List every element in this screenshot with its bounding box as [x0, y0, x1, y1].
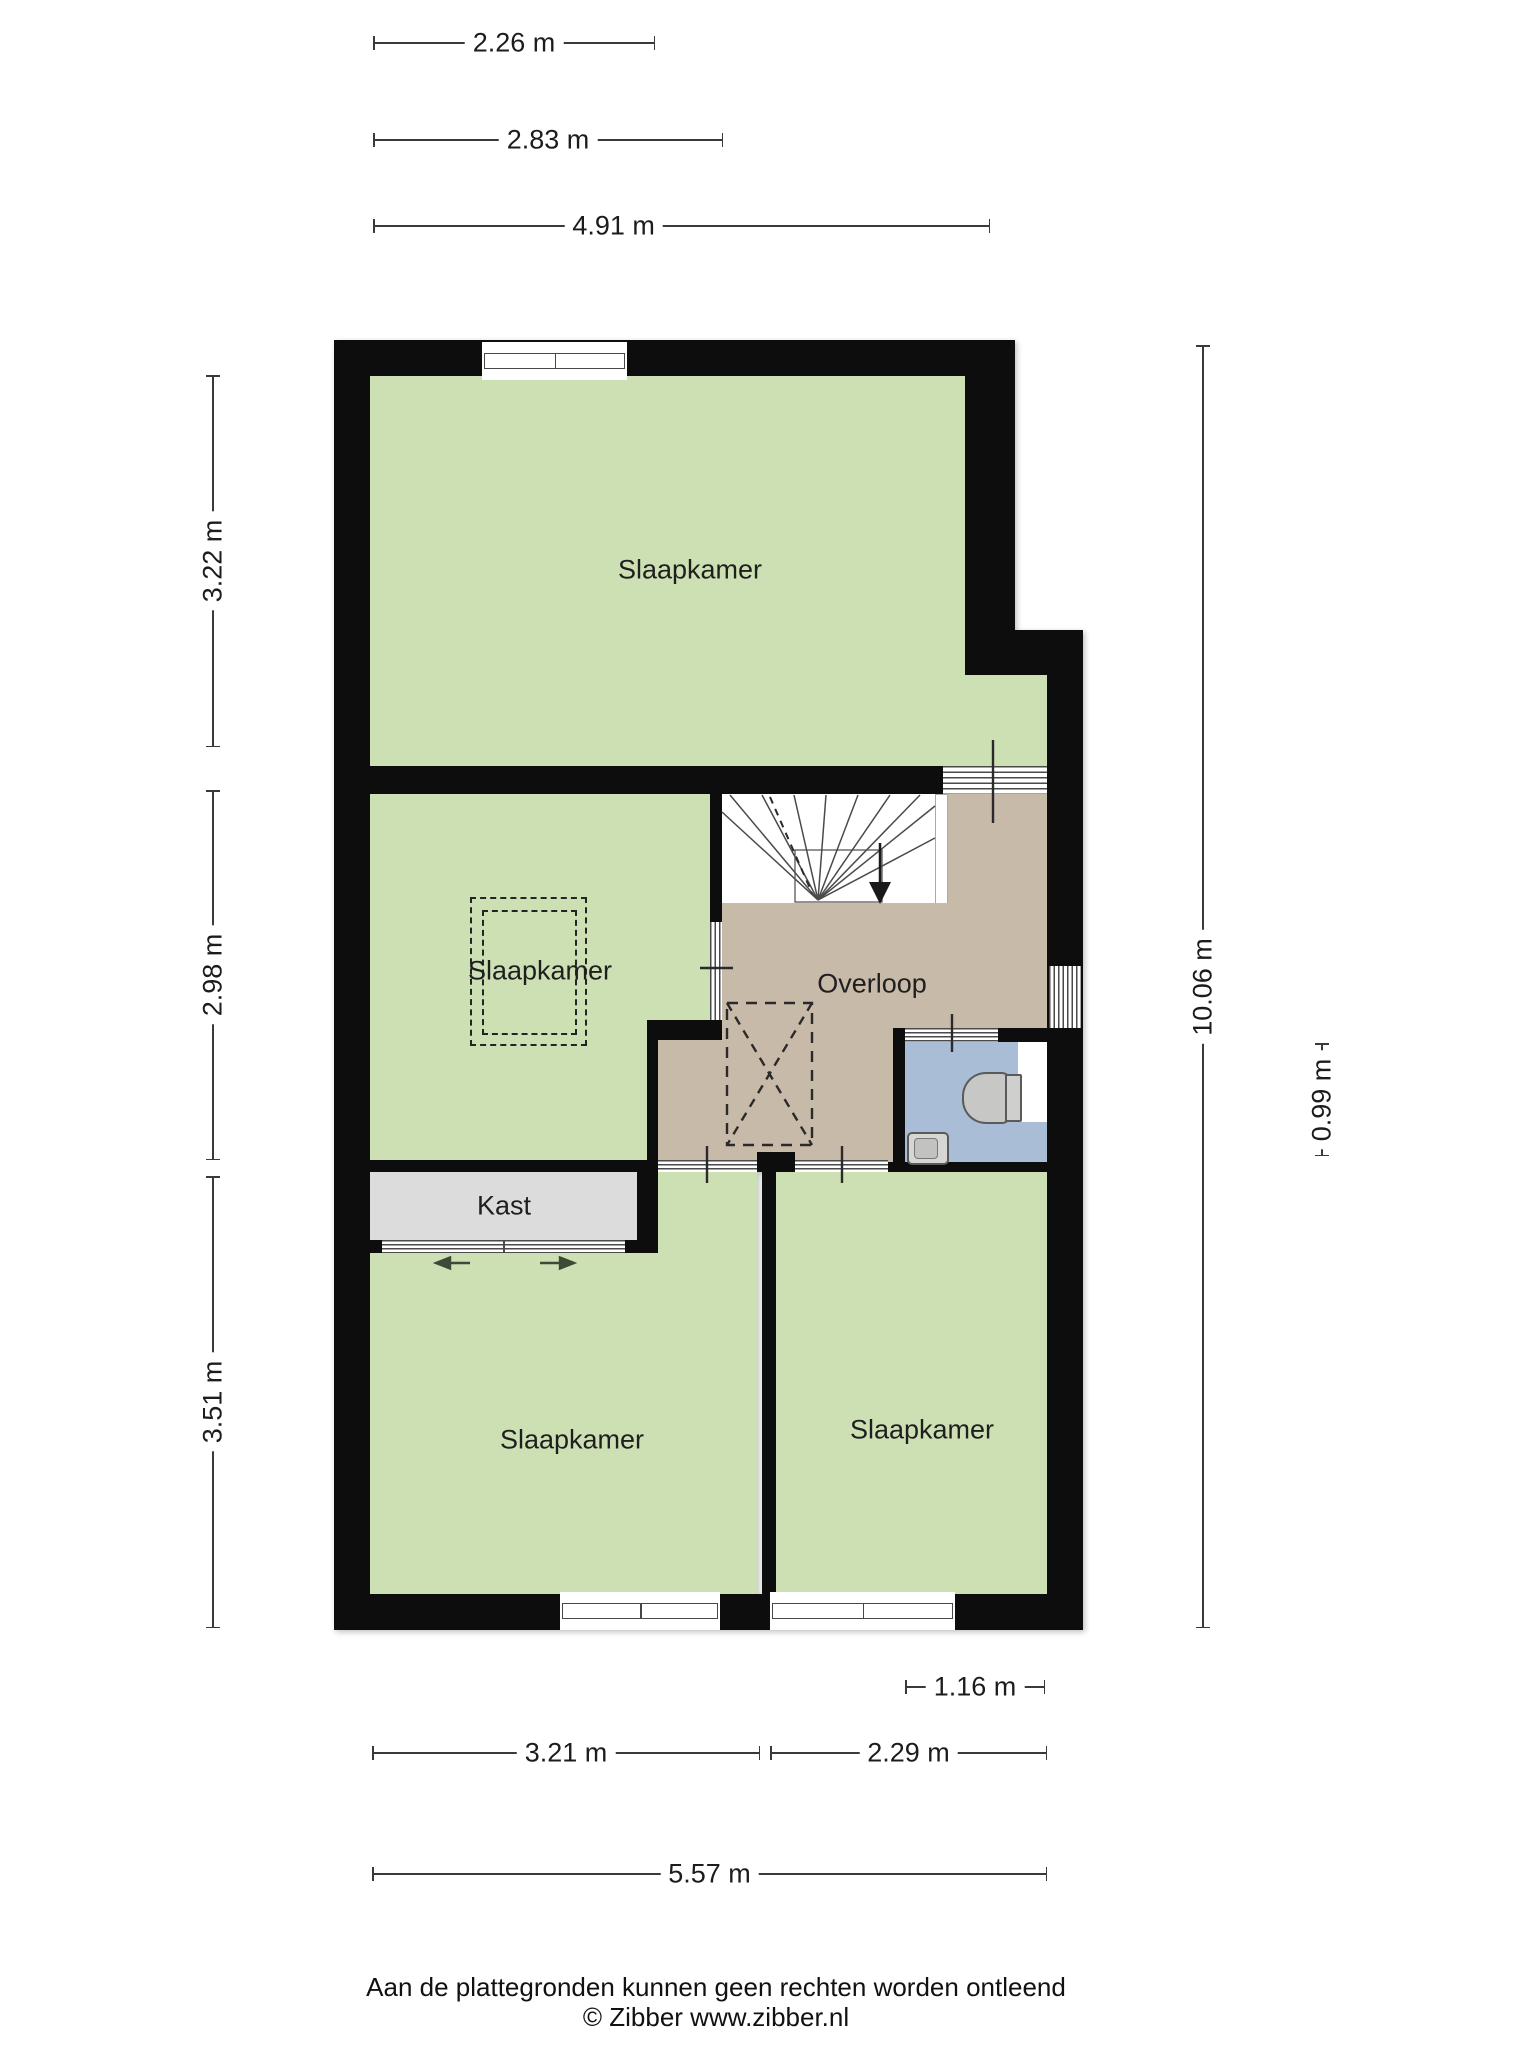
toilet-niche	[1018, 1042, 1047, 1122]
dimension-label: 10.06 m	[1188, 930, 1219, 1044]
opening-bottom-right-icon	[795, 1160, 888, 1172]
wall-opening-head	[757, 1152, 795, 1172]
dimension-label: 1.16 m	[926, 1672, 1025, 1703]
wall-left	[334, 340, 370, 1630]
wall-notch-west	[647, 1040, 658, 1172]
toilet-cistern-icon	[1005, 1074, 1022, 1122]
wall-toilet-left	[893, 1042, 905, 1162]
dimension-label: 2.26 m	[465, 28, 564, 59]
floorplan-page: Slaapkamer Slaapkamer Overloop Kast Slaa…	[0, 0, 1536, 2048]
sink-basin-icon	[914, 1138, 938, 1159]
window-bottom-right-icon	[770, 1592, 955, 1630]
landing-fill-main	[722, 903, 893, 1162]
dimension-label: 2.29 m	[859, 1738, 958, 1769]
wall-top	[334, 340, 1015, 376]
window-right-icon	[1049, 966, 1081, 1028]
landing-fill-northeast	[893, 903, 1047, 1028]
room-label-bedroom-bottom-right: Slaapkamer	[850, 1415, 994, 1446]
stairs-stringer	[935, 794, 948, 920]
room-label-closet: Kast	[477, 1191, 531, 1222]
landing-fill-east	[948, 794, 1047, 903]
stairs-area	[722, 794, 935, 903]
room-label-bedroom-middle: Slaapkamer	[468, 956, 612, 987]
window-bottom-left-icon	[560, 1592, 720, 1630]
wall-mid-row	[370, 766, 943, 794]
dimension-label: 2.83 m	[499, 125, 598, 156]
room-label-bedroom-bottom-left: Slaapkamer	[500, 1425, 644, 1456]
toilet-door-icon	[905, 1028, 998, 1042]
dimension-label: 5.57 m	[660, 1859, 759, 1890]
stairwell-window-icon	[710, 922, 722, 1020]
wall-closet-right	[637, 1162, 658, 1253]
footer-credit: © Zibber www.zibber.nl	[583, 2002, 849, 2033]
wall-right	[1047, 645, 1083, 1630]
wall-right-upper	[965, 340, 1015, 675]
window-top-icon	[482, 342, 627, 380]
dimension-label: 0.99 m	[1307, 1050, 1338, 1149]
dimension-label: 3.51 m	[198, 1353, 229, 1452]
dimension-label: 4.91 m	[564, 211, 663, 242]
dimension-label: 3.22 m	[198, 512, 229, 611]
room-fill-bedroom-top-ext	[965, 675, 1047, 767]
dimension-label: 2.98 m	[198, 926, 229, 1025]
sink-icon	[907, 1132, 949, 1165]
closet-sliding-door-icon	[382, 1240, 625, 1253]
room-label-landing: Overloop	[817, 969, 927, 1000]
closet-door-post-left	[370, 1240, 382, 1253]
room-fill-bedroom-bottom-right	[776, 1172, 1047, 1594]
landing-fill-notch	[658, 1040, 722, 1162]
opening-bottom-left-icon	[658, 1160, 757, 1172]
closet-door-divider	[503, 1240, 505, 1253]
dimension-label: 3.21 m	[517, 1738, 616, 1769]
room-label-bedroom-top: Slaapkamer	[618, 555, 762, 586]
wall-stairs-west	[710, 794, 722, 922]
wall-notch-north	[647, 1020, 722, 1040]
wall-closet-top	[370, 1160, 647, 1172]
wall-room-divider	[762, 1172, 776, 1594]
footer-disclaimer: Aan de plattegronden kunnen geen rechten…	[366, 1972, 1066, 2003]
closet-door-post-right	[625, 1240, 637, 1253]
landing-window-icon	[943, 766, 1047, 794]
